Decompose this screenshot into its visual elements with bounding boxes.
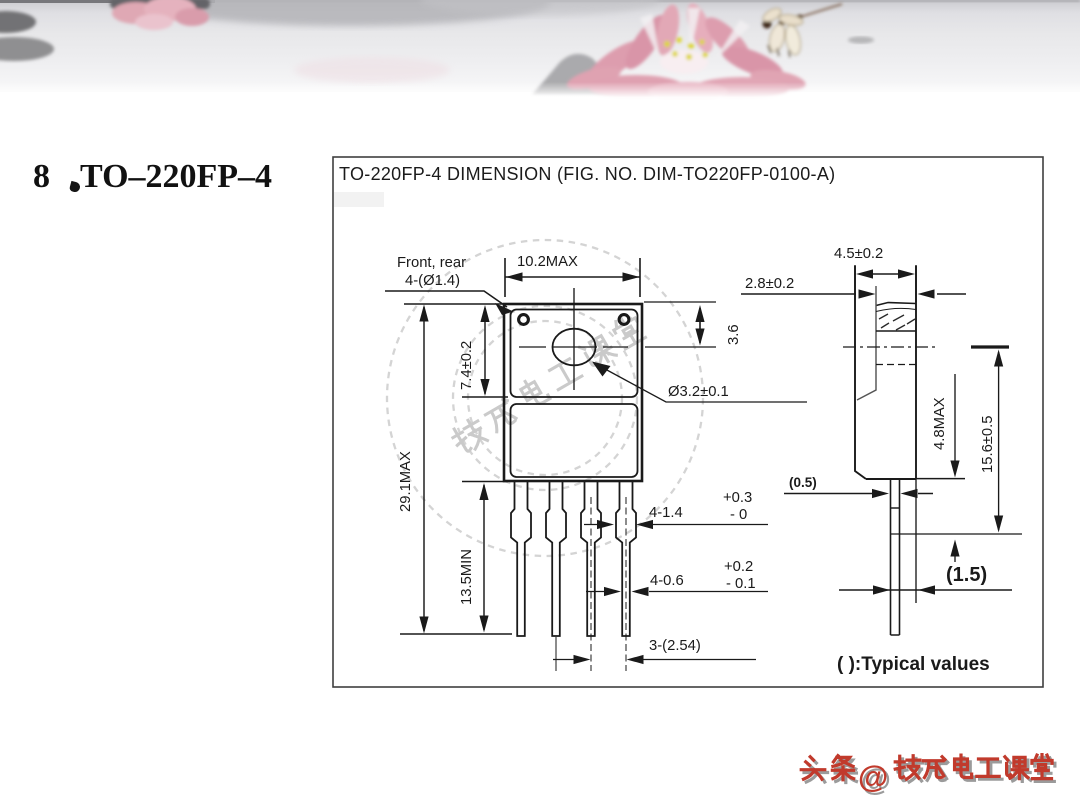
svg-text:( ):Typical values: ( ):Typical values (837, 654, 990, 675)
svg-text:15.6±0.5: 15.6±0.5 (980, 416, 996, 474)
svg-text:10.2MAX: 10.2MAX (517, 254, 578, 270)
svg-text:(0.5): (0.5) (789, 475, 817, 490)
svg-text:2.8±0.2: 2.8±0.2 (745, 276, 794, 292)
svg-text:TO-220FP-4 DIMENSION (FIG. NO.: TO-220FP-4 DIMENSION (FIG. NO. DIM-TO220… (339, 164, 835, 184)
svg-text:+0.3: +0.3 (723, 490, 752, 506)
svg-text:Ø3.2±0.1: Ø3.2±0.1 (668, 384, 729, 400)
svg-text:29.1MAX: 29.1MAX (398, 451, 414, 512)
svg-text:3-(2.54): 3-(2.54) (649, 638, 701, 654)
svg-text:4-(Ø1.4): 4-(Ø1.4) (405, 273, 460, 289)
svg-text:- 0.1: - 0.1 (726, 576, 756, 592)
svg-text:4.5±0.2: 4.5±0.2 (834, 246, 883, 262)
svg-text:4-0.6: 4-0.6 (650, 573, 684, 589)
svg-text:7.4±0.2: 7.4±0.2 (459, 341, 475, 390)
svg-text:3.6: 3.6 (726, 324, 742, 345)
svg-text:+0.2: +0.2 (724, 559, 753, 575)
svg-text:4-1.4: 4-1.4 (649, 505, 683, 521)
svg-text:Front, rear: Front, rear (397, 255, 466, 271)
svg-text:- 0: - 0 (730, 507, 747, 523)
svg-text:13.5MIN: 13.5MIN (459, 549, 475, 605)
svg-text:4.8MAX: 4.8MAX (932, 397, 948, 450)
svg-text:(1.5): (1.5) (946, 564, 987, 586)
svg-text:@: @ (858, 759, 888, 794)
